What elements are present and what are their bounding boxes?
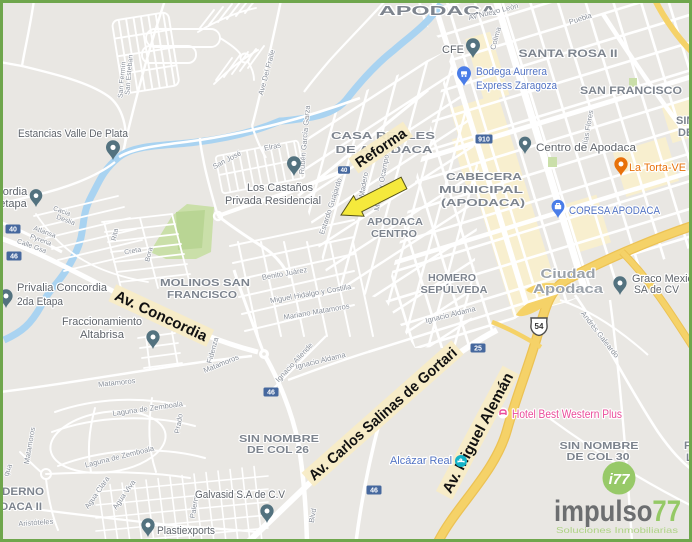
svg-text:CABECERA: CABECERA (446, 171, 523, 183)
svg-text:910: 910 (478, 137, 490, 144)
svg-text:SANTA ROSA II: SANTA ROSA II (519, 48, 618, 60)
svg-text:Privada Residencial: Privada Residencial (225, 195, 321, 207)
svg-text:Ciudad: Ciudad (541, 266, 596, 281)
svg-text:25: 25 (474, 346, 482, 353)
svg-text:46: 46 (370, 488, 378, 495)
svg-text:etapa: etapa (0, 198, 28, 210)
svg-text:Altabrisa: Altabrisa (80, 329, 125, 341)
svg-text:Privalia Concordia: Privalia Concordia (17, 282, 108, 294)
svg-text:54: 54 (535, 322, 544, 331)
svg-text:Fraccionamiento: Fraccionamiento (62, 316, 142, 328)
svg-text:HOMERO: HOMERO (428, 273, 476, 284)
svg-text:2da Etapa: 2da Etapa (17, 296, 64, 308)
svg-text:DERNO: DERNO (2, 486, 44, 498)
svg-text:46: 46 (10, 254, 18, 261)
svg-text:FRANCISCO: FRANCISCO (167, 289, 237, 301)
svg-text:ordia: ordia (3, 186, 28, 198)
svg-text:46: 46 (267, 390, 275, 397)
svg-text:40: 40 (341, 168, 348, 174)
svg-text:Apodaca: Apodaca (533, 281, 604, 296)
svg-text:Los Castaños: Los Castaños (247, 182, 313, 194)
svg-text:CFE: CFE (442, 44, 464, 56)
svg-text:MOLINOS SAN: MOLINOS SAN (160, 277, 250, 289)
svg-text:DACA II: DACA II (0, 501, 42, 513)
svg-text:Bodega Aurrera: Bodega Aurrera (476, 66, 548, 78)
svg-text:La Torta-VE: La Torta-VE (629, 162, 686, 174)
svg-text:40: 40 (9, 227, 17, 234)
svg-text:Soluciones Inmobiliarias: Soluciones Inmobiliarias (556, 525, 678, 535)
svg-text:SA de CV: SA de CV (634, 284, 680, 296)
svg-text:Hotel Best Western Plus: Hotel Best Western Plus (512, 407, 622, 421)
svg-text:(APODACA): (APODACA) (441, 197, 525, 209)
svg-text:APODACA: APODACA (367, 216, 423, 228)
svg-text:Galvasid S.A de C.V: Galvasid S.A de C.V (195, 489, 286, 501)
svg-text:Alcázar Real: Alcázar Real (390, 455, 452, 467)
svg-text:DE COL 30: DE COL 30 (567, 451, 630, 463)
svg-text:SEPÚLVEDA: SEPÚLVEDA (421, 283, 488, 296)
svg-text:CENTRO: CENTRO (371, 228, 417, 240)
svg-text:DE COL 26: DE COL 26 (247, 444, 309, 456)
svg-text:CORESA APODACA: CORESA APODACA (569, 205, 661, 217)
svg-text:Express Zaragoza: Express Zaragoza (476, 80, 558, 92)
svg-text:SAN FRANCISCO: SAN FRANCISCO (580, 85, 682, 97)
svg-text:Plastiexports: Plastiexports (157, 525, 215, 537)
svg-text:impulso77: impulso77 (554, 495, 681, 528)
svg-text:MUNICIPAL: MUNICIPAL (439, 184, 524, 196)
svg-text:Estancias Valle De Plata: Estancias Valle De Plata (18, 128, 129, 140)
svg-text:Centro de Apodaca: Centro de Apodaca (536, 142, 637, 154)
svg-text:i77: i77 (609, 471, 631, 488)
